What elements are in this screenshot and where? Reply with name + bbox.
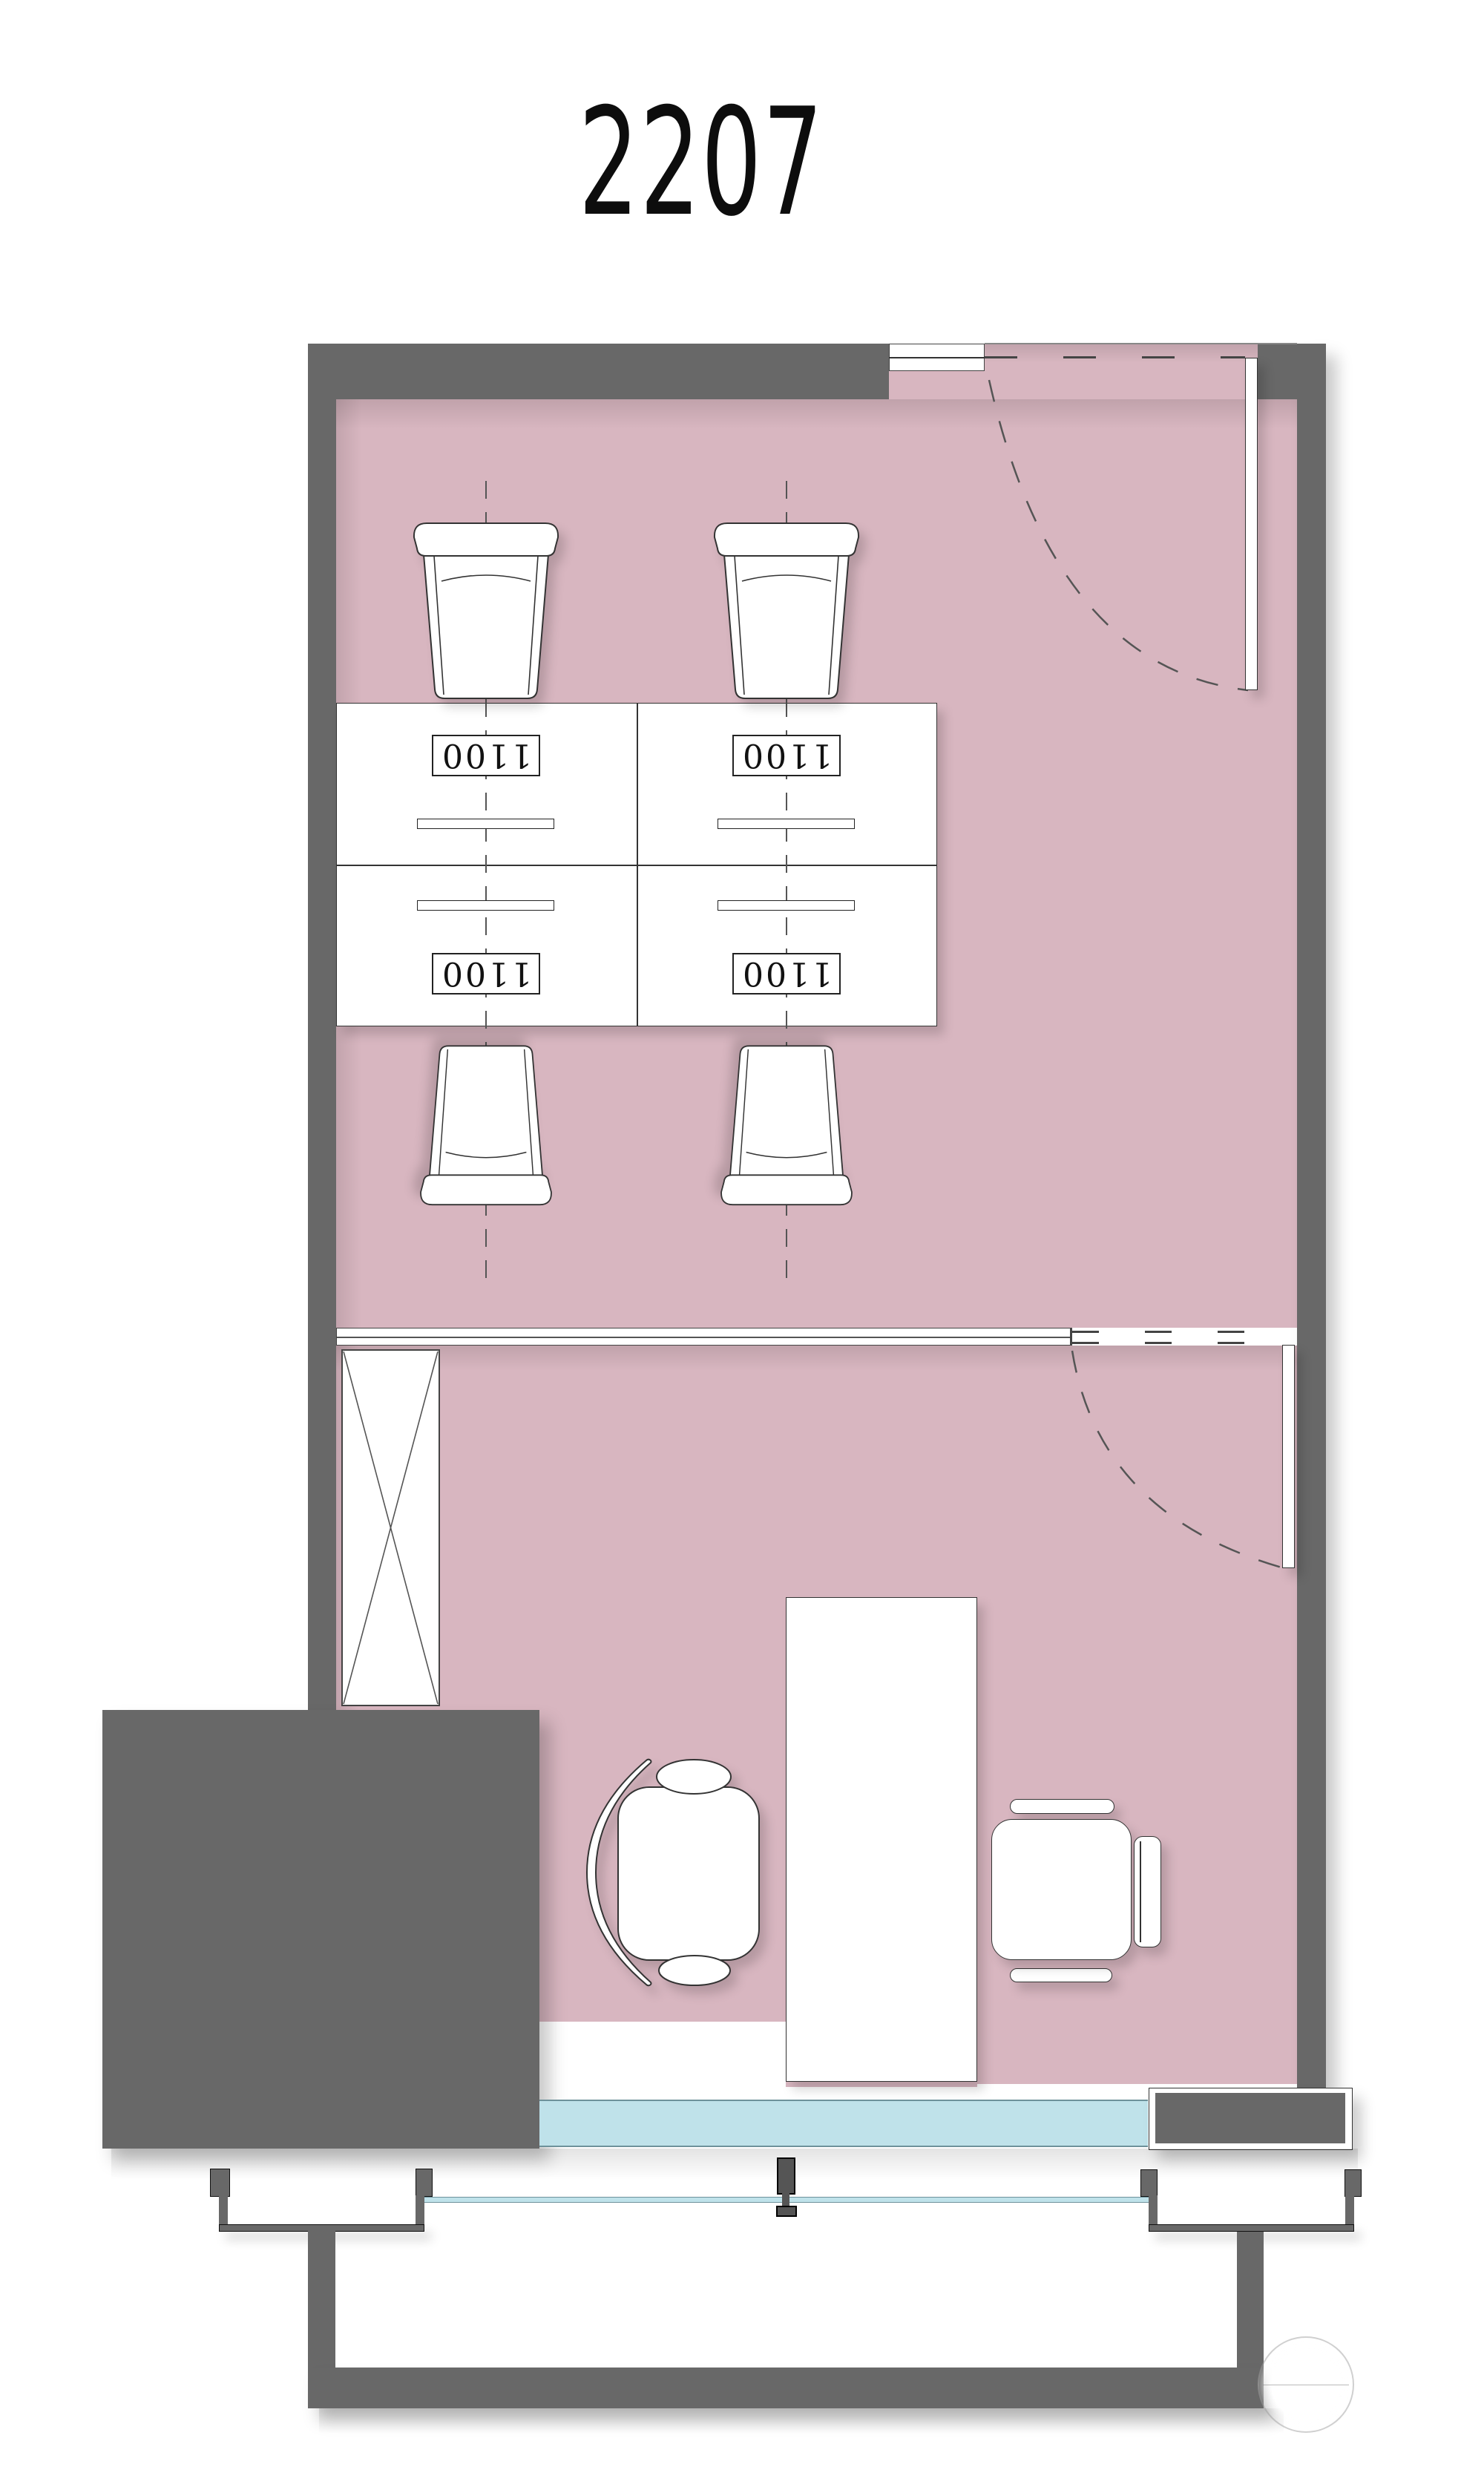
shadow-under-balcony bbox=[319, 2408, 1284, 2434]
shaft-duct bbox=[341, 1349, 440, 1706]
partition-inner-line bbox=[337, 1337, 1070, 1338]
desk-slot bbox=[718, 900, 855, 911]
door-threshold-floor bbox=[889, 371, 985, 399]
threshold-mid-line bbox=[889, 357, 985, 358]
workstation-desk-cluster bbox=[336, 703, 937, 1026]
desk-label: 1100 bbox=[732, 953, 841, 995]
armchair-icon bbox=[412, 522, 560, 704]
inner-door-leaf bbox=[1282, 1345, 1295, 1568]
glass-bracket-top bbox=[777, 2157, 795, 2195]
shadow-under-facade bbox=[111, 2149, 1358, 2180]
desk-label: 1100 bbox=[432, 953, 540, 995]
armchair-icon bbox=[403, 1041, 569, 1206]
core-block bbox=[102, 1710, 539, 2149]
window-glazing-band bbox=[539, 2100, 1148, 2147]
desk-divider-horizontal bbox=[337, 865, 936, 866]
window-pier-frame bbox=[1149, 2088, 1353, 2150]
railing-post bbox=[210, 2169, 230, 2197]
balcony-wall-right bbox=[1237, 2232, 1264, 2368]
railing-stem bbox=[1345, 2195, 1354, 2226]
railing-stem bbox=[1149, 2195, 1158, 2226]
unit-title: 2207 bbox=[511, 89, 891, 237]
railing-stem bbox=[416, 2195, 424, 2226]
exterior-wall-right bbox=[1297, 344, 1326, 2088]
corner-pier-top-right bbox=[1258, 344, 1326, 399]
railing-post bbox=[1140, 2169, 1158, 2197]
partition-opening-dash-top bbox=[1072, 1331, 1282, 1333]
entry-opening-dashed-line bbox=[985, 356, 1245, 358]
exterior-wall-left bbox=[308, 344, 336, 1710]
railing-rail-right bbox=[1149, 2224, 1354, 2232]
partition-opening-dash-bottom bbox=[1072, 1342, 1282, 1344]
desk-label: 1100 bbox=[732, 735, 841, 776]
open-edge-line bbox=[985, 343, 1297, 344]
balcony-wall-left bbox=[308, 2229, 335, 2368]
balcony-wall-bottom bbox=[308, 2368, 1264, 2408]
armchair-icon bbox=[703, 1041, 870, 1206]
exterior-wall-top bbox=[308, 344, 889, 399]
desk-slot bbox=[718, 819, 855, 829]
task-chair-seat bbox=[991, 1819, 1132, 1960]
armchair-icon bbox=[712, 522, 861, 704]
task-chair-backrest-line bbox=[1140, 1841, 1141, 1942]
railing-stem bbox=[219, 2195, 228, 2226]
desk-slot bbox=[417, 900, 554, 911]
logo-watermark-icon bbox=[1258, 2336, 1354, 2433]
railing-post bbox=[416, 2169, 433, 2197]
partition-wall bbox=[336, 1328, 1072, 1346]
window-pier bbox=[1155, 2093, 1345, 2143]
shadow-under-partition bbox=[336, 1346, 1297, 1371]
task-chair-armrest-top bbox=[1010, 1799, 1114, 1814]
window-sill-zone-left bbox=[539, 2022, 786, 2100]
task-chair-armrest-bottom bbox=[1010, 1968, 1112, 1982]
glass-bracket-foot bbox=[776, 2206, 797, 2217]
railing-post bbox=[1345, 2169, 1362, 2197]
private-desk bbox=[786, 1597, 977, 2082]
task-chair-backrest bbox=[1134, 1836, 1161, 1947]
floor-plan: 2207 bbox=[0, 0, 1484, 2487]
executive-chair-icon bbox=[582, 1755, 764, 1989]
desk-slot bbox=[417, 819, 554, 829]
shadow-under-top-wall bbox=[336, 399, 1297, 429]
entry-door-leaf bbox=[1245, 358, 1258, 690]
shaft-x-brace-icon bbox=[341, 1349, 440, 1706]
desk-label: 1100 bbox=[432, 735, 540, 776]
